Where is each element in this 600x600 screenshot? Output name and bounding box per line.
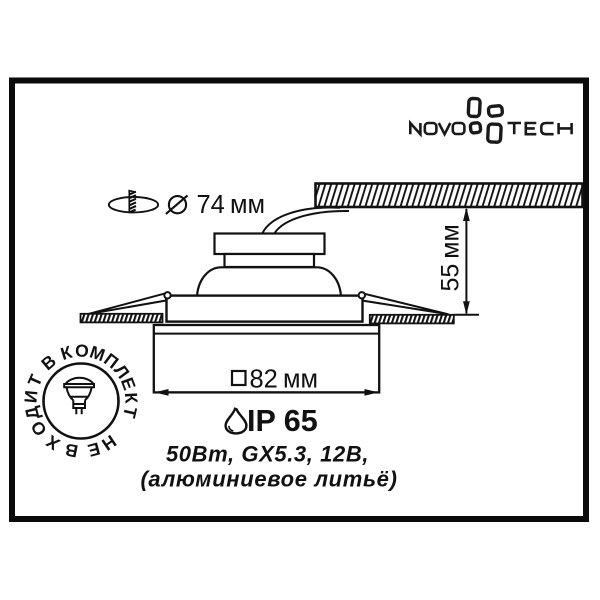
svg-text:О: О [75, 341, 89, 361]
svg-text:74 мм: 74 мм [197, 191, 266, 219]
svg-text:82 мм: 82 мм [250, 366, 319, 394]
svg-text:К: К [121, 392, 142, 404]
svg-text:55 мм: 55 мм [436, 224, 464, 291]
svg-text:И: И [20, 389, 41, 403]
svg-text:50Вт, GX5.3, 12В,: 50Вт, GX5.3, 12В, [166, 442, 369, 467]
svg-text:IP 65: IP 65 [247, 404, 318, 438]
svg-text:(алюминиевое литьё): (алюминиевое литьё) [140, 467, 397, 492]
